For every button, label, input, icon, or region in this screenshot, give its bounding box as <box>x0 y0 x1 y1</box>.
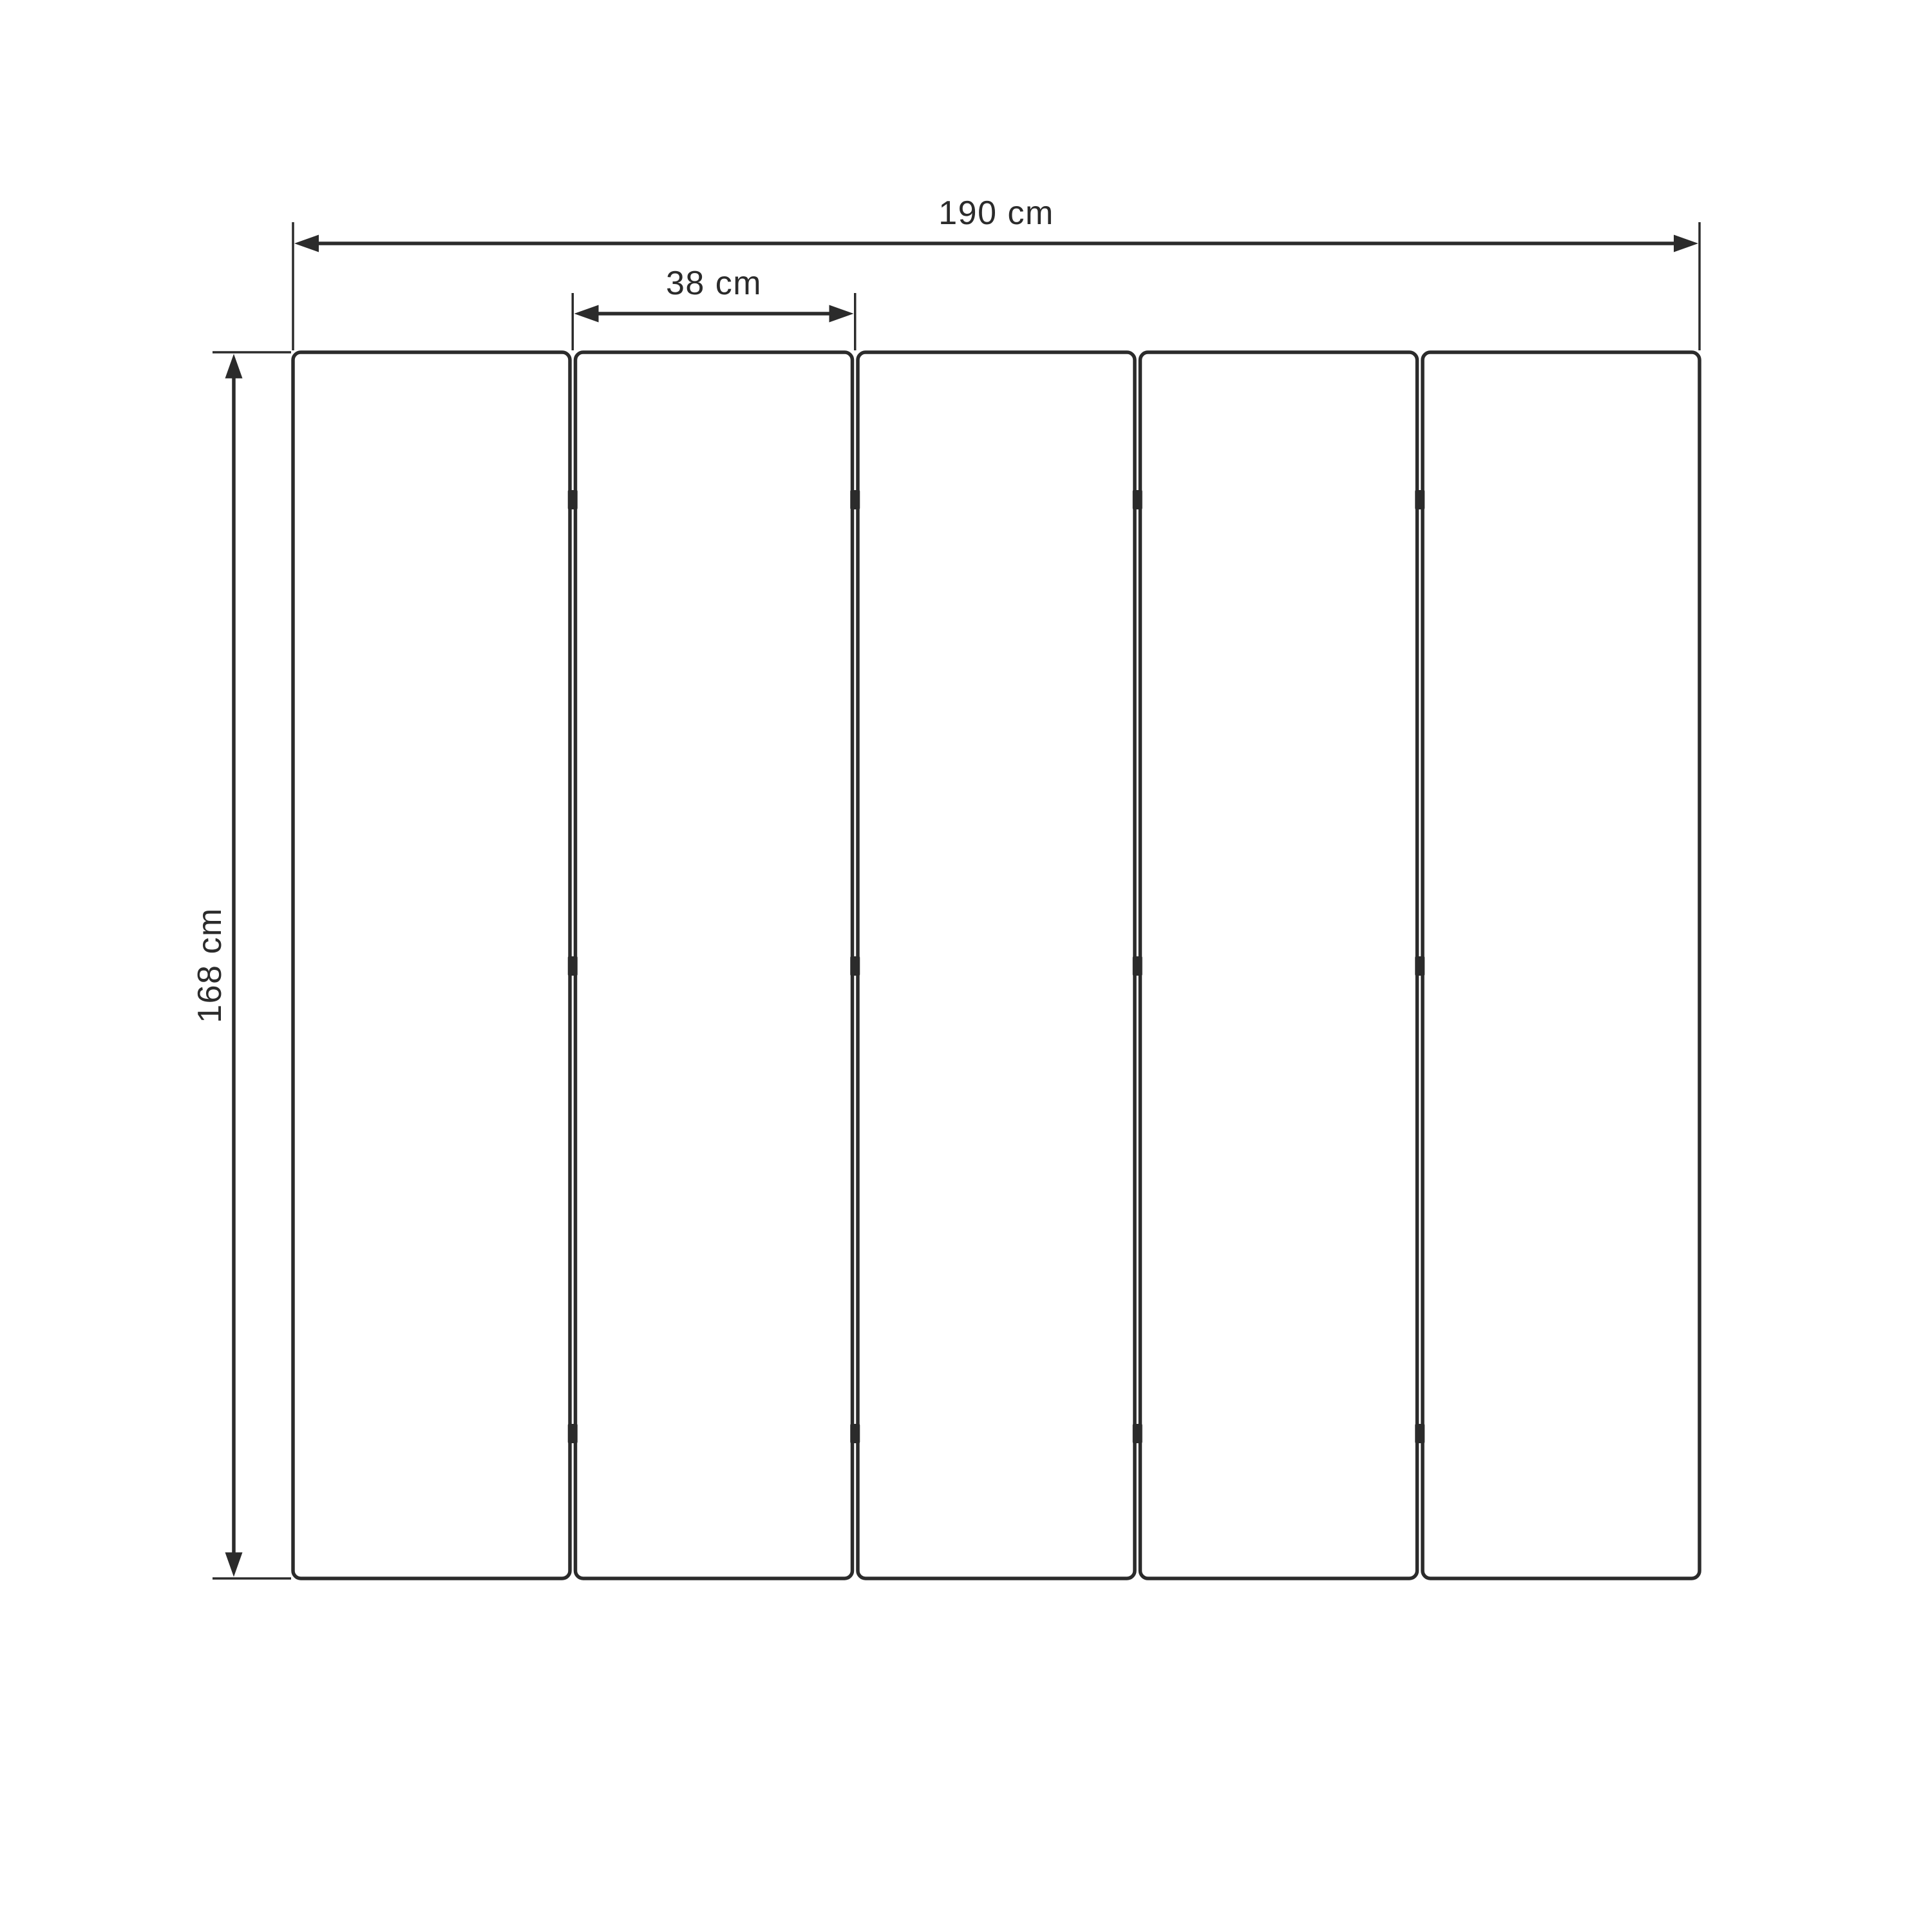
arrowhead-up-icon <box>225 354 243 379</box>
hinge-gap4-top-icon <box>1415 490 1425 509</box>
panel-2 <box>576 352 853 1578</box>
page-background: 190 cm 38 cm 168 cm <box>0 0 1932 1932</box>
hinge-gap1-bottom-icon <box>568 1424 578 1443</box>
hinge-gap2-top-icon <box>850 490 860 509</box>
hinge-gap4-bottom-icon <box>1415 1424 1425 1443</box>
hinge-gap2-bottom-icon <box>850 1424 860 1443</box>
panel-5 <box>1423 352 1700 1578</box>
panel-1 <box>293 352 570 1578</box>
arrowhead-right-icon <box>829 305 854 323</box>
hinge-gap3-bottom-icon <box>1133 1424 1142 1443</box>
hinge-gap1-top-icon <box>568 490 578 509</box>
panel-width-label: 38 cm <box>666 265 762 302</box>
panel-4 <box>1141 352 1417 1578</box>
dimension-panel-width <box>574 305 854 323</box>
hinge-gap3-middle-icon <box>1133 956 1142 976</box>
arrowhead-left-icon <box>294 235 319 252</box>
hinge-gap2-middle-icon <box>850 956 860 976</box>
arrowhead-right-icon <box>1674 235 1698 252</box>
folding-screen-dimension-diagram: 190 cm 38 cm 168 cm <box>0 0 1932 1932</box>
height-label: 168 cm <box>191 907 229 1023</box>
hinge-gap1-middle-icon <box>568 956 578 976</box>
hinge-gap3-top-icon <box>1133 490 1142 509</box>
hinge-gap4-middle-icon <box>1415 956 1425 976</box>
dimension-total-width <box>294 235 1698 252</box>
panels <box>293 352 1700 1578</box>
arrowhead-down-icon <box>225 1553 243 1577</box>
arrowhead-left-icon <box>574 305 599 323</box>
panel-3 <box>858 352 1135 1578</box>
total-width-label: 190 cm <box>938 194 1054 232</box>
